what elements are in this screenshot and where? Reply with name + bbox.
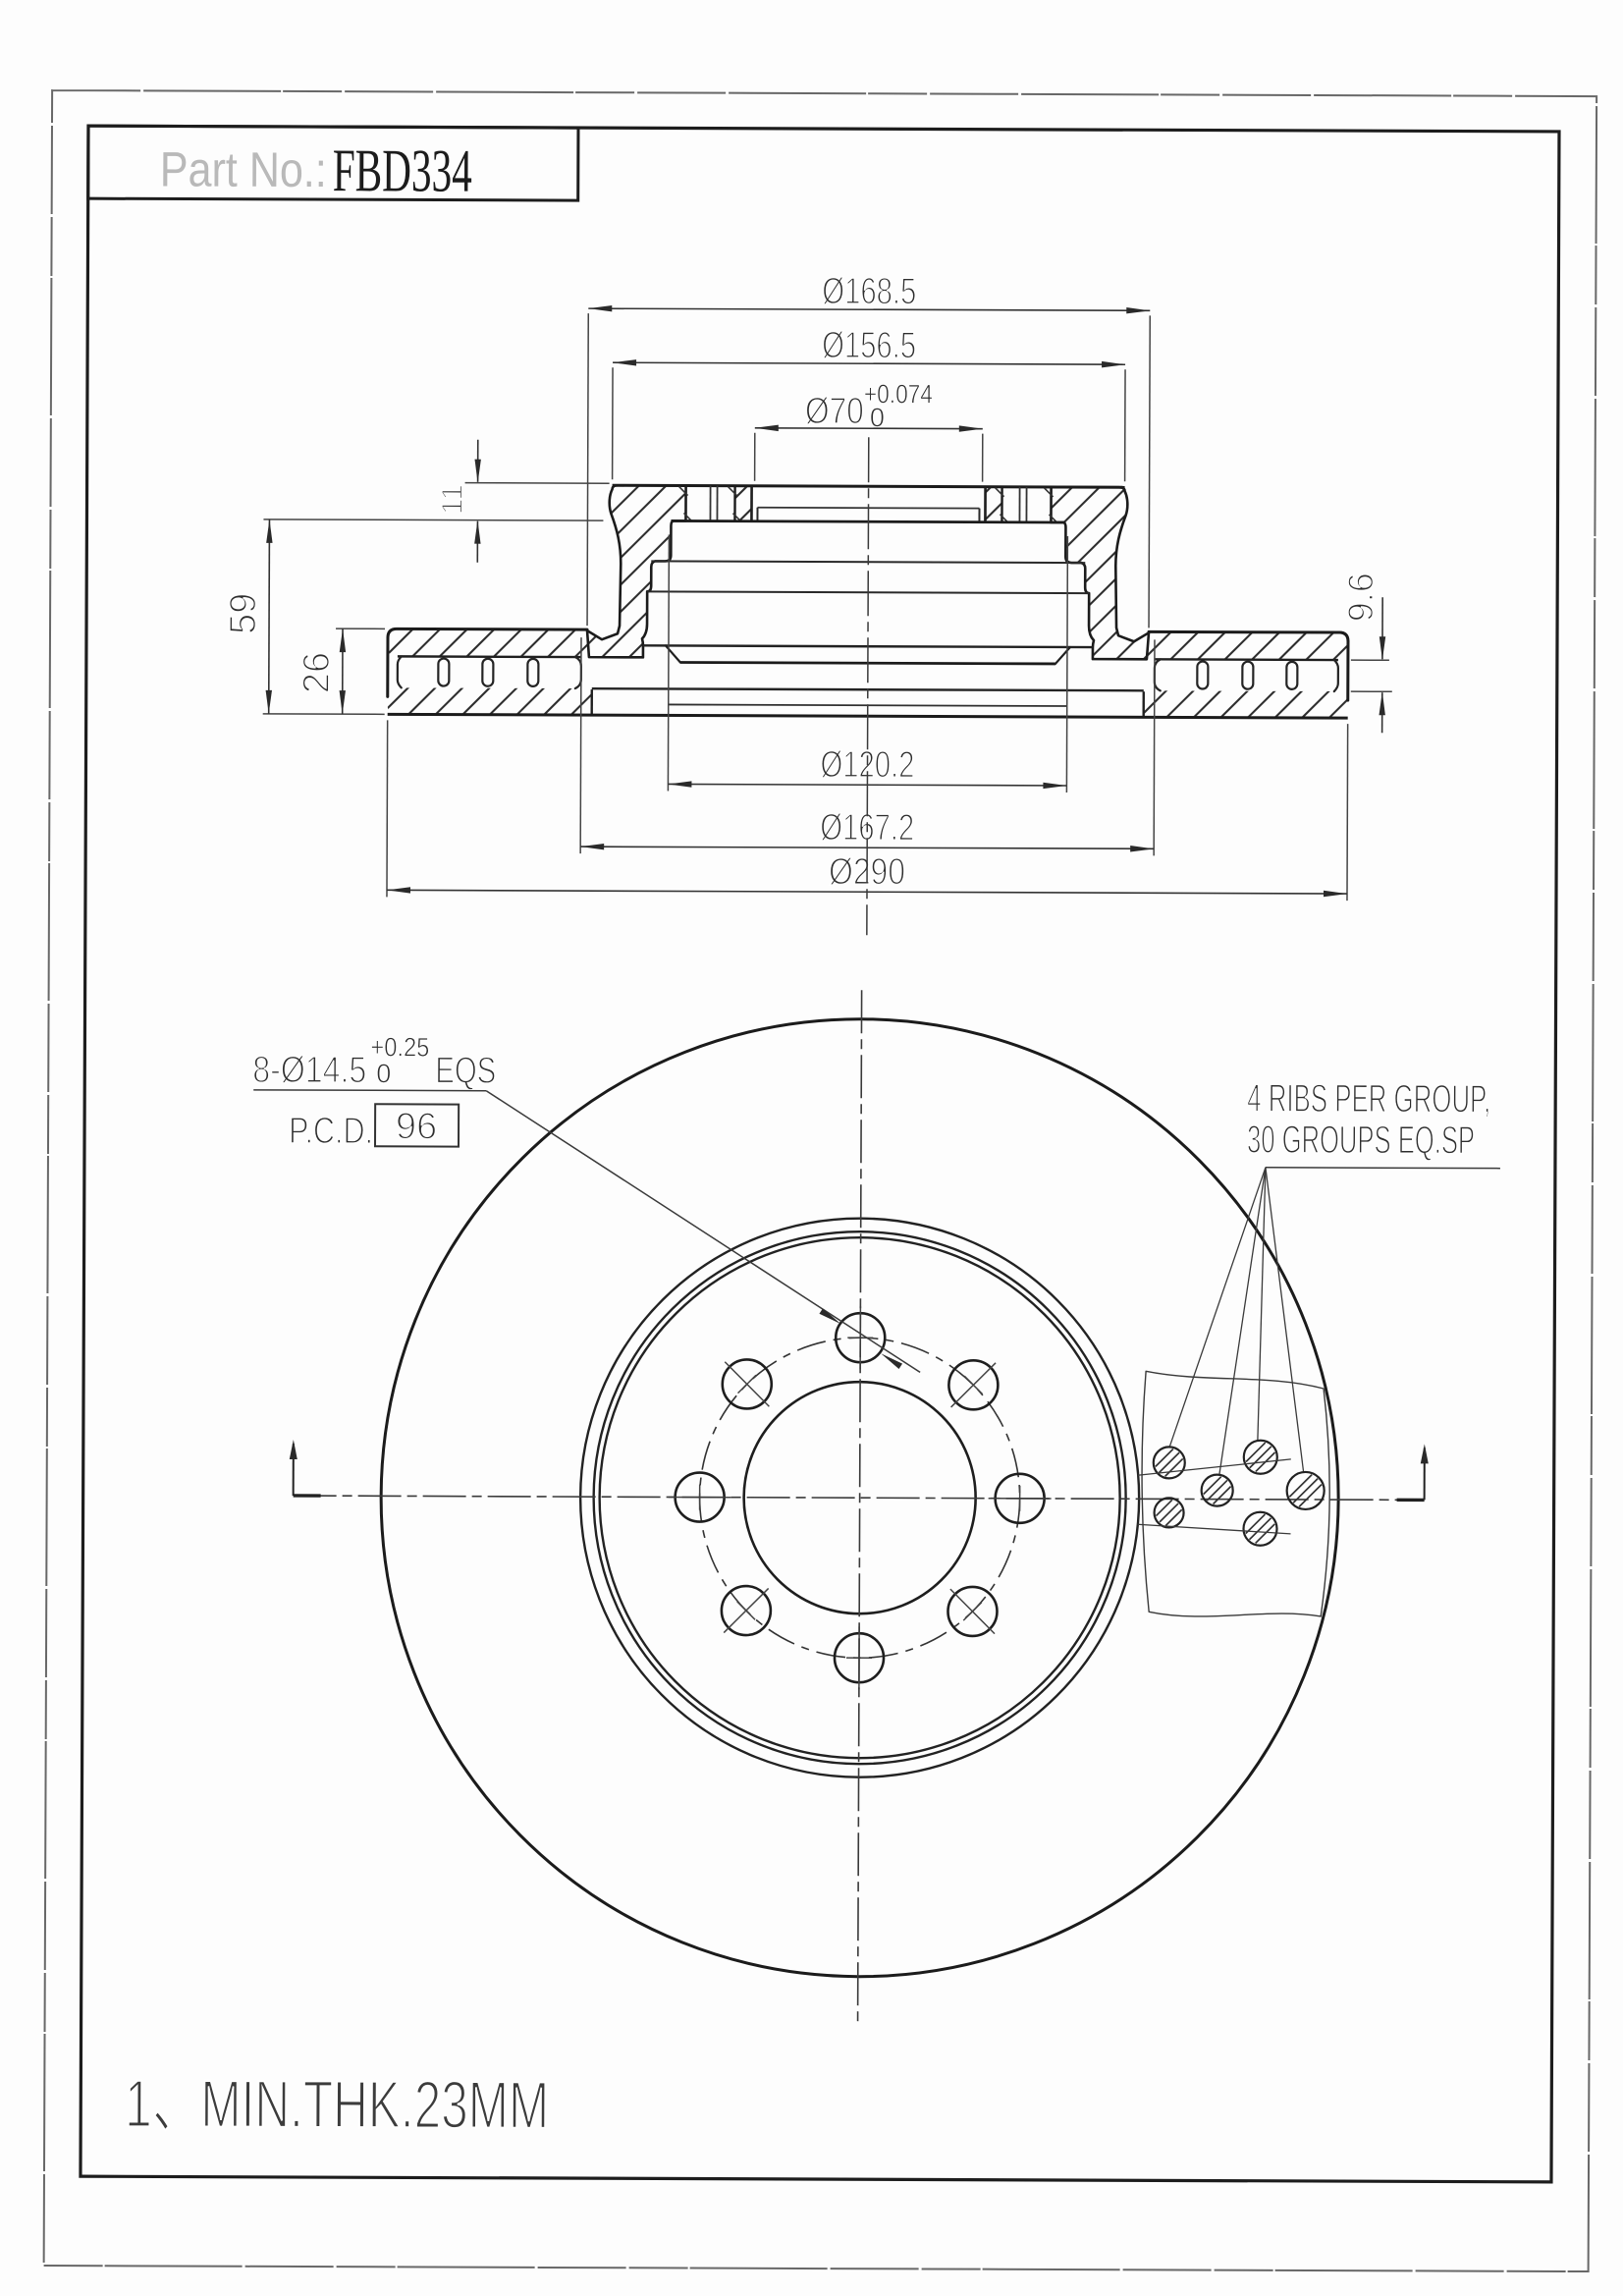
svg-text:8-Ø14.5: 8-Ø14.5 (252, 1050, 366, 1091)
svg-text:Ø156.5: Ø156.5 (822, 325, 916, 366)
svg-text:1、MIN.THK.23MM: 1、MIN.THK.23MM (125, 2066, 549, 2143)
svg-text:9.6: 9.6 (1340, 573, 1380, 622)
svg-text:Part No.:: Part No.: (160, 141, 327, 197)
svg-text:Ø70: Ø70 (805, 391, 864, 432)
svg-text:4 RIBS PER GROUP,: 4 RIBS PER GROUP, (1247, 1077, 1490, 1121)
svg-text:P.C.D.: P.C.D. (289, 1111, 373, 1152)
svg-text:FBD334: FBD334 (333, 137, 472, 205)
svg-text:96: 96 (396, 1106, 437, 1147)
svg-text:0: 0 (376, 1059, 391, 1088)
svg-text:EQS: EQS (435, 1051, 496, 1092)
svg-text:+0.25: +0.25 (370, 1032, 429, 1062)
svg-text:0: 0 (870, 403, 885, 432)
svg-text:11: 11 (436, 484, 468, 515)
svg-text:26: 26 (297, 652, 338, 693)
svg-text:59: 59 (223, 593, 264, 634)
svg-text:30 GROUPS EQ.SP: 30 GROUPS EQ.SP (1247, 1119, 1475, 1163)
svg-text:Ø168.5: Ø168.5 (822, 271, 916, 312)
